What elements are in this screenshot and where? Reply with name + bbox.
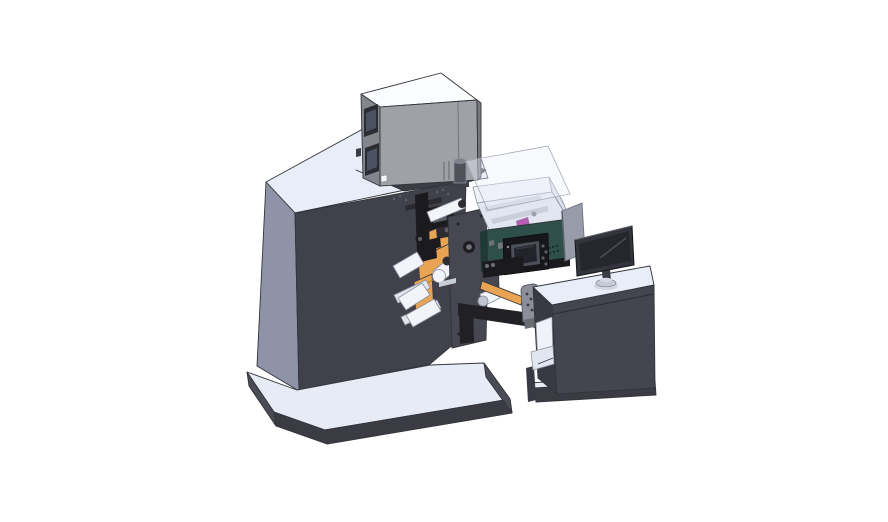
screw-hole [399, 195, 401, 197]
screw-hole [405, 199, 407, 201]
bolt [491, 263, 495, 267]
hmi-button [541, 244, 544, 247]
screw-hole [436, 191, 438, 193]
roller-end-cap [458, 200, 466, 208]
hmi-button [544, 250, 547, 253]
vent-dot [557, 250, 559, 252]
operator-desk [531, 266, 655, 394]
hinge [356, 148, 361, 157]
roller-end [478, 296, 488, 306]
vent-dot [552, 246, 554, 248]
bolt [485, 264, 489, 268]
cad-viewport [0, 0, 888, 522]
hmi-button [544, 262, 547, 265]
hmi-led [507, 246, 509, 248]
interior-pin [532, 212, 537, 217]
knob-center [418, 237, 422, 241]
hole [527, 304, 530, 307]
vent-dot [549, 252, 551, 254]
monitor-base-top [600, 278, 612, 282]
pipe-cap [454, 159, 466, 164]
beam-mount [459, 308, 474, 344]
shaft-center [466, 244, 472, 250]
screw-hole [442, 189, 444, 191]
nameplate-label [381, 175, 387, 182]
hole [530, 298, 533, 301]
mount-screw [489, 240, 494, 246]
machine-render [0, 0, 888, 522]
pipe-body [454, 161, 466, 183]
screw-hole [447, 193, 449, 195]
hmi-button [541, 256, 544, 259]
roller-end [433, 270, 446, 283]
bolt [457, 223, 460, 226]
vent-dot [553, 251, 555, 253]
hole [531, 309, 534, 312]
cabinet-window [367, 148, 377, 171]
hole [526, 293, 529, 296]
vent-dot [556, 245, 558, 247]
screw-hole [393, 198, 395, 200]
cabinet-window [366, 109, 376, 132]
exhaust-pipe [451, 159, 469, 188]
